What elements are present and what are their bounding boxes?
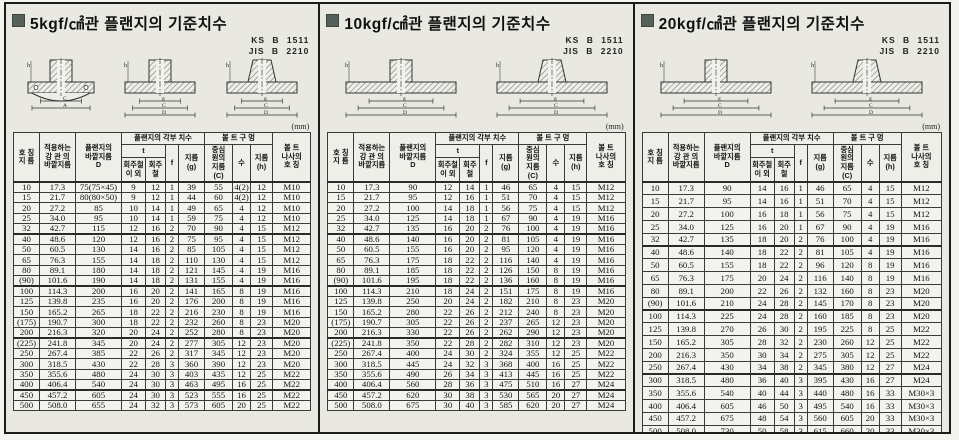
table-row: 8089.120022262132160823M20 bbox=[642, 285, 941, 298]
table-row: 350355.6490263434134451625M22 bbox=[328, 369, 625, 379]
table-row: 4048.6120121627595415M12 bbox=[14, 234, 311, 244]
svg-text:h: h bbox=[811, 63, 814, 69]
svg-text:g: g bbox=[554, 96, 557, 102]
col-g: 지름 (g) bbox=[807, 144, 833, 182]
svg-text:g: g bbox=[718, 96, 721, 102]
svg-text:C: C bbox=[403, 103, 407, 109]
table-row: 450457.2605243035235551625M22 bbox=[14, 390, 311, 400]
spec-table: 호 칭 지 름 적용하는 강 관 의 바깥지름 플랜지의 바깥지름 D 플랜지의… bbox=[642, 132, 942, 432]
col-g: 지름 (g) bbox=[493, 144, 519, 182]
col-t-non-gray-cast: 회주철 이 외 bbox=[750, 158, 774, 182]
table-row: 3242.71351820276100419M16 bbox=[642, 233, 941, 246]
col-nominal: 호 칭 지 름 bbox=[642, 133, 668, 183]
panel-title: 10kgf/㎠관 플랜지의 기준치수 bbox=[327, 12, 625, 34]
row-group: 4048.61401620281105419M165060.5155162029… bbox=[328, 234, 625, 286]
table-row: 400406.4540243034634951625M22 bbox=[14, 380, 311, 390]
flange-drawing: hgCD bbox=[648, 58, 784, 122]
unit-label: (mm) bbox=[327, 122, 623, 131]
svg-text:D: D bbox=[718, 110, 722, 116]
svg-text:A: A bbox=[63, 103, 67, 109]
col-hole-dia: 지름 (h) bbox=[251, 144, 273, 182]
table-row: 450457.2620303835305652027M24 bbox=[328, 390, 625, 400]
col-g: 지름 (g) bbox=[179, 144, 205, 182]
table-row: 250267.4400243023243551225M22 bbox=[328, 348, 625, 358]
table-row: 5060.51551620295120419M16 bbox=[328, 244, 625, 254]
col-t-gray-cast: 회주철 bbox=[146, 158, 166, 182]
col-hole-dia: 지름 (h) bbox=[879, 144, 901, 182]
table-row: 250267.4430343823453801227M24 bbox=[642, 361, 941, 374]
table-row: 2534.0125141816790419M16 bbox=[328, 213, 625, 223]
svg-text:D: D bbox=[264, 110, 268, 116]
col-count: 수 bbox=[547, 144, 565, 182]
table-header: 호 칭 지 름 적용하는 강 관 의 바깥지름 플랜지의 바깥지름 D 플랜지의… bbox=[328, 133, 625, 183]
table-row: 1017.390121414665415M12 bbox=[328, 182, 625, 192]
panel-title: 5kgf/㎠관 플랜지의 기준치수 bbox=[13, 12, 311, 34]
svg-text:C: C bbox=[869, 103, 873, 109]
standard-ks: KS B 1511 bbox=[327, 35, 623, 46]
table-row: 2027.2100161815675415M12 bbox=[642, 208, 941, 221]
table-row: 250267.4385222623173451223M20 bbox=[14, 348, 311, 358]
table-row: 500508.0730505836156602033M30×3 bbox=[642, 425, 941, 432]
svg-text:D: D bbox=[403, 110, 407, 116]
standards-ref: KS B 1511 JIS B 2210 bbox=[327, 35, 623, 57]
panel-20kgf: 20kgf/㎠관 플랜지의 기준치수 KS B 1511 JIS B 2210 … bbox=[635, 4, 949, 432]
flange-drawings: hgCD hgCD bbox=[327, 58, 625, 122]
col-count: 수 bbox=[861, 144, 879, 182]
table-row: 2027.2100141815675415M12 bbox=[328, 203, 625, 213]
svg-text:h: h bbox=[496, 63, 499, 69]
col-bolt-thread: 볼 트 나사의 호 칭 bbox=[273, 133, 311, 183]
flange-drawing: hCA bbox=[15, 58, 107, 122]
table-row: 125139.825020242182210823M20 bbox=[328, 296, 625, 306]
standard-ks: KS B 1511 bbox=[642, 35, 940, 46]
row-group: 100114.321018242151175819M16125139.82502… bbox=[328, 286, 625, 338]
table-row: 8089.118518222126150819M16 bbox=[328, 265, 625, 275]
table-row: 400406.4560283634755101627M24 bbox=[328, 380, 625, 390]
panel-title: 20kgf/㎠관 플랜지의 기준치수 bbox=[642, 12, 942, 34]
flange-drawing: hgCD bbox=[333, 58, 469, 122]
flange-drawing: hgCD bbox=[484, 58, 620, 122]
table-row: 1521.780(80×50)912144604(2)12M10 bbox=[14, 193, 311, 203]
unit-label: (mm) bbox=[642, 122, 940, 131]
row-group: 1017.390121414665415M121521.795121615170… bbox=[328, 182, 625, 234]
table-row: 300318.5430222833603901223M20 bbox=[14, 359, 311, 369]
table-row: 6576.315514182110130415M12 bbox=[14, 255, 311, 265]
table-row: 400406.4605465034955401633M30×3 bbox=[642, 400, 941, 413]
standard-jis: JIS B 2210 bbox=[642, 46, 940, 57]
table-row: 1017.375(75×45)912139554(2)12M10 bbox=[14, 182, 311, 192]
group-flange-dims: 플랜지의 각부 치수 bbox=[122, 133, 205, 145]
svg-text:D: D bbox=[162, 110, 166, 116]
panel-title-text: 20kgf/㎠관 플랜지의 기준치수 bbox=[659, 12, 865, 34]
svg-text:C: C bbox=[718, 103, 722, 109]
table-row: 5060.51301416285105415M12 bbox=[14, 244, 311, 254]
row-group: 450457.2605243035235551625M22500508.0655… bbox=[14, 390, 311, 411]
col-bolt-thread: 볼 트 나사의 호 칭 bbox=[901, 133, 941, 183]
table-row: 5060.51551822296120819M16 bbox=[642, 259, 941, 272]
table-row: 1521.795141615170415M12 bbox=[642, 195, 941, 208]
spec-table: 호 칭 지 름 적용하는 강 관 의 바깥지름 플랜지의 바깥지름 D 플랜지의… bbox=[13, 132, 311, 411]
group-bolt-holes: 볼 트 구 멍 bbox=[833, 133, 901, 145]
col-nominal: 호 칭 지 름 bbox=[14, 133, 40, 183]
row-group: 450457.2620303835305652027M24500508.0675… bbox=[328, 390, 625, 411]
col-flange-od: 플랜지의 바깥지름 D bbox=[76, 133, 122, 183]
col-t: t bbox=[750, 144, 794, 158]
standard-jis: JIS B 2210 bbox=[13, 46, 309, 57]
table-row: (225)241.8345202422773051223M20 bbox=[14, 338, 311, 348]
col-bolt-thread: 볼 트 나사의 호 칭 bbox=[587, 133, 625, 183]
col-flange-od: 플랜지의 바깥지름 D bbox=[704, 133, 750, 183]
section-bullet-icon bbox=[327, 15, 338, 26]
table-row: (225)241.8350222822823101223M20 bbox=[328, 338, 625, 348]
table-header: 호 칭 지 름 적용하는 강 관 의 바깥지름 플랜지의 바깥지름 D 플랜지의… bbox=[14, 133, 311, 183]
table-row: 300318.5480364033954301627M24 bbox=[642, 374, 941, 387]
flange-drawings: hCA hgCD hgCD bbox=[13, 58, 311, 122]
col-t-gray-cast: 회주철 bbox=[774, 158, 794, 182]
svg-text:h: h bbox=[226, 63, 229, 69]
row-group: 100114.320016202141165819M16125139.82351… bbox=[14, 286, 311, 338]
table-row: 100114.321018242151175819M16 bbox=[328, 286, 625, 296]
col-t: t bbox=[122, 144, 166, 158]
row-group: (225)241.8350222822823101223M20250267.44… bbox=[328, 338, 625, 390]
table-row: (90)101.619014182131155419M16 bbox=[14, 276, 311, 286]
flange-drawings: hgCD hgCD bbox=[642, 58, 942, 122]
flange-drawing: hgCD bbox=[214, 58, 310, 122]
col-bolt-circle: 중심 원의 지름 (C) bbox=[519, 144, 547, 182]
col-pipe-od: 적용하는 강 관 의 바깥지름 bbox=[668, 133, 704, 183]
col-f: f bbox=[794, 144, 807, 182]
table-row: 4048.61401620281105419M16 bbox=[328, 234, 625, 244]
table-row: 2534.095101415975412M10 bbox=[14, 213, 311, 223]
svg-text:g: g bbox=[403, 96, 406, 102]
table-row: 150165.226518222216230819M16 bbox=[14, 307, 311, 317]
section-bullet-icon bbox=[13, 15, 24, 26]
col-flange-od: 플랜지의 바깥지름 D bbox=[390, 133, 436, 183]
group-bolt-holes: 볼 트 구 멍 bbox=[205, 133, 273, 145]
table-row: (175)190.730018222232260823M20 bbox=[14, 317, 311, 327]
row-group: (225)241.8345202422773051223M20250267.43… bbox=[14, 338, 311, 390]
table-row: 125139.827026302195225825M22 bbox=[642, 323, 941, 336]
col-hole-dia: 지름 (h) bbox=[565, 144, 587, 182]
table-row: 200216.3350303422753051225M22 bbox=[642, 349, 941, 362]
svg-text:h: h bbox=[660, 63, 663, 69]
panel-5kgf: 5kgf/㎠관 플랜지의 기준치수 KS B 1511 JIS B 2210 h… bbox=[6, 4, 320, 432]
col-pipe-od: 적용하는 강 관 의 바깥지름 bbox=[40, 133, 76, 183]
standard-ks: KS B 1511 bbox=[13, 35, 309, 46]
table-row: 8089.118014182121145419M16 bbox=[14, 265, 311, 275]
svg-text:C: C bbox=[264, 103, 268, 109]
col-f: f bbox=[480, 144, 493, 182]
group-flange-dims: 플랜지의 각부 치수 bbox=[750, 133, 833, 145]
section-bullet-icon bbox=[642, 15, 653, 26]
group-bolt-holes: 볼 트 구 멍 bbox=[519, 133, 587, 145]
standard-jis: JIS B 2210 bbox=[327, 46, 623, 57]
row-group: 300318.5480364033954301627M24350355.6540… bbox=[642, 374, 941, 432]
group-flange-dims: 플랜지의 각부 치수 bbox=[436, 133, 519, 145]
table-row: 6576.317518222116140419M16 bbox=[328, 255, 625, 265]
standards-ref: KS B 1511 JIS B 2210 bbox=[13, 35, 309, 57]
col-bolt-circle: 중심 원의 지름 (C) bbox=[833, 144, 861, 182]
table-row: (90)101.621024282145170823M20 bbox=[642, 297, 941, 310]
table-row: 3242.71351620276100419M16 bbox=[328, 224, 625, 234]
table-row: 3242.7115121627090415M12 bbox=[14, 224, 311, 234]
standards-ref: KS B 1511 JIS B 2210 bbox=[642, 35, 940, 57]
catalog-page: 5kgf/㎠관 플랜지의 기준치수 KS B 1511 JIS B 2210 h… bbox=[4, 2, 951, 434]
table-row: 150165.2305283222302601225M22 bbox=[642, 336, 941, 349]
table-row: 1017.390141614665415M12 bbox=[642, 182, 941, 195]
col-nominal: 호 칭 지 름 bbox=[328, 133, 354, 183]
table-row: 100114.320016202141165819M16 bbox=[14, 286, 311, 296]
svg-text:C: C bbox=[63, 96, 67, 102]
table-row: 300318.5445243233684001625M22 bbox=[328, 359, 625, 369]
col-count: 수 bbox=[233, 144, 251, 182]
row-group: 100114.322524282160185823M20125139.82702… bbox=[642, 310, 941, 374]
table-row: 350355.6480243034034351225M22 bbox=[14, 369, 311, 379]
svg-text:g: g bbox=[264, 96, 267, 102]
svg-text:h: h bbox=[27, 63, 30, 69]
table-row: 6576.317520242116140819M16 bbox=[642, 272, 941, 285]
table-row: 450457.2675485435606052033M30×3 bbox=[642, 412, 941, 425]
panel-title-text: 10kgf/㎠관 플랜지의 기준치수 bbox=[344, 12, 550, 34]
row-group: 1017.390141614665415M121521.795141615170… bbox=[642, 182, 941, 246]
spec-table: 호 칭 지 름 적용하는 강 관 의 바깥지름 플랜지의 바깥지름 D 플랜지의… bbox=[327, 132, 625, 411]
col-t-gray-cast: 회주철 bbox=[460, 158, 480, 182]
row-group: 1017.375(75×45)912139554(2)12M101521.780… bbox=[14, 182, 311, 234]
table-row: (90)101.619518222136160819M16 bbox=[328, 276, 625, 286]
table-row: 500508.0675304035856202027M24 bbox=[328, 400, 625, 410]
svg-text:C: C bbox=[162, 103, 166, 109]
svg-text:C: C bbox=[554, 103, 558, 109]
row-group: 4048.61401822281105419M165060.5155182229… bbox=[642, 246, 941, 310]
table-header: 호 칭 지 름 적용하는 강 관 의 바깥지름 플랜지의 바깥지름 D 플랜지의… bbox=[642, 133, 941, 183]
table-row: (175)190.7305222622372651223M20 bbox=[328, 317, 625, 327]
col-pipe-od: 적용하는 강 관 의 바깥지름 bbox=[354, 133, 390, 183]
col-t-non-gray-cast: 회주철 이 외 bbox=[436, 158, 460, 182]
table-row: 350355.6540404434404801633M30×3 bbox=[642, 387, 941, 400]
panel-title-text: 5kgf/㎠관 플랜지의 기준치수 bbox=[30, 12, 227, 34]
row-group: 4048.6120121627595415M125060.51301416285… bbox=[14, 234, 311, 286]
col-t-non-gray-cast: 회주철 이 외 bbox=[122, 158, 146, 182]
table-row: 2027.285101414965412M10 bbox=[14, 203, 311, 213]
svg-text:g: g bbox=[869, 96, 872, 102]
svg-text:g: g bbox=[162, 96, 165, 102]
col-bolt-circle: 중심 원의 지름 (C) bbox=[205, 144, 233, 182]
col-t: t bbox=[436, 144, 480, 158]
table-row: 500508.0655243235736052025M22 bbox=[14, 400, 311, 410]
flange-drawing: hgCD bbox=[112, 58, 208, 122]
unit-label: (mm) bbox=[13, 122, 309, 131]
table-row: 100114.322524282160185823M20 bbox=[642, 310, 941, 323]
flange-drawing: hgCD bbox=[799, 58, 935, 122]
table-row: 125139.823516202176200819M16 bbox=[14, 296, 311, 306]
table-row: 1521.795121615170415M12 bbox=[328, 193, 625, 203]
svg-text:h: h bbox=[124, 63, 127, 69]
table-row: 150165.228022262212240823M20 bbox=[328, 307, 625, 317]
svg-text:D: D bbox=[869, 110, 873, 116]
table-row: 200216.3330222622622901223M20 bbox=[328, 328, 625, 338]
col-f: f bbox=[166, 144, 179, 182]
panel-10kgf: 10kgf/㎠관 플랜지의 기준치수 KS B 1511 JIS B 2210 … bbox=[320, 4, 634, 432]
table-row: 2534.0125162016790419M16 bbox=[642, 221, 941, 234]
table-row: 200216.332020242252280823M20 bbox=[14, 328, 311, 338]
svg-text:h: h bbox=[345, 63, 348, 69]
table-row: 4048.61401822281105419M16 bbox=[642, 246, 941, 259]
svg-text:D: D bbox=[554, 110, 558, 116]
